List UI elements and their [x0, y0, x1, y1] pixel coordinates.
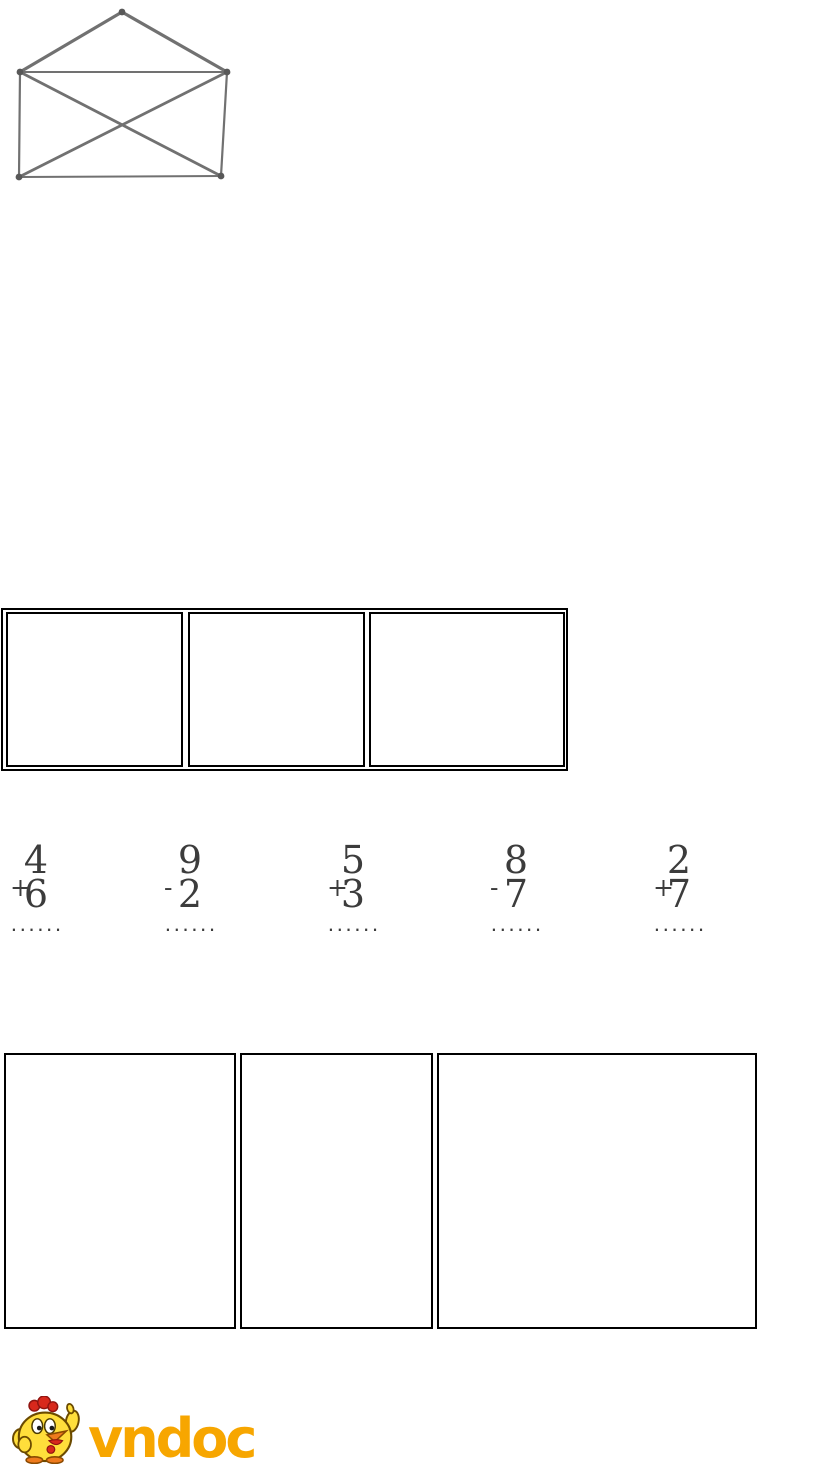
bottom-answer-box-3	[437, 1053, 757, 1329]
worksheet-page: 4 + 6 ...... 9 - 2 ...... 5 + 3 ...... 8…	[0, 0, 836, 1464]
bottom-answer-box-1	[4, 1053, 236, 1329]
math-problem-5: 2 + 7 ......	[653, 843, 705, 934]
math-problem-3: 5 + 3 ......	[327, 843, 379, 934]
operator-sign: -	[164, 875, 172, 900]
operator-sign: +	[327, 875, 348, 900]
bottom-operand-row: - 2	[164, 877, 216, 911]
middle-answer-table	[1, 608, 568, 771]
bottom-operand-row: - 7	[490, 877, 542, 911]
bottom-operand-row: + 6	[10, 877, 62, 911]
answer-dotted-line: ......	[10, 922, 62, 934]
logo-wordmark: vndoc	[88, 1416, 254, 1462]
operator-sign: +	[10, 875, 31, 900]
operator-sign: +	[653, 875, 674, 900]
math-problem-1: 4 + 6 ......	[10, 843, 62, 934]
vndoc-logo: vndoc	[8, 1394, 254, 1464]
envelope-figure-canvas	[0, 0, 250, 198]
envelope-line-figure	[0, 0, 250, 198]
chicken-mascot-icon	[8, 1396, 86, 1464]
middle-answer-cell-3	[369, 612, 565, 767]
answer-dotted-line: ......	[490, 922, 542, 934]
middle-answer-cell-1	[6, 612, 183, 767]
math-problem-2: 9 - 2 ......	[164, 843, 216, 934]
bottom-operand-row: + 7	[653, 877, 705, 911]
answer-dotted-line: ......	[327, 922, 379, 934]
answer-dotted-line: ......	[653, 922, 705, 934]
math-problem-4: 8 - 7 ......	[490, 843, 542, 934]
bottom-answer-box-2	[240, 1053, 433, 1329]
operator-sign: -	[490, 875, 498, 900]
middle-answer-cell-2	[188, 612, 365, 767]
bottom-operand-row: + 3	[327, 877, 379, 911]
answer-dotted-line: ......	[164, 922, 216, 934]
